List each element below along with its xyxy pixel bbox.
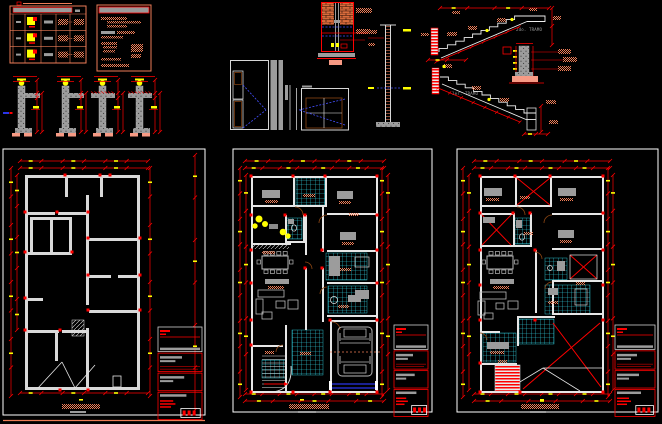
column-marker [59, 329, 62, 332]
tb-logo [188, 411, 191, 416]
rebar-tick [513, 56, 517, 58]
footing [59, 128, 76, 133]
yellow-dim-tick [244, 335, 248, 337]
stair-section-details[interactable]: 2do. TRAMO 1er. TRAMO [368, 6, 577, 136]
cad-drawing: 2do. TRAMO 1er. TRAMO [0, 0, 662, 424]
sofa [258, 290, 284, 297]
specifications-table[interactable] [10, 6, 86, 63]
wall [519, 316, 555, 318]
wall-section-detail-4 [128, 77, 162, 137]
wall [480, 205, 517, 207]
yellow-dim-tick [9, 181, 13, 183]
yellow-dim-tick [114, 160, 118, 162]
text-bar [265, 279, 289, 284]
column-marker [99, 174, 102, 177]
plan-title-hatch [62, 404, 100, 409]
floor-plan-sheet-structural[interactable] [3, 149, 205, 421]
label-hatch [117, 31, 135, 34]
section-bubble [61, 79, 70, 81]
label-hatch [268, 286, 284, 289]
hatched-column [432, 68, 439, 94]
yellow-dim-tick [148, 238, 152, 240]
wall [25, 212, 55, 215]
column-marker [292, 175, 295, 178]
yellow-dim-tick [606, 231, 610, 233]
label-hatch [493, 286, 509, 289]
yellow-dim-tick [606, 333, 610, 335]
yellow-dim-tick [347, 160, 351, 162]
wall [25, 175, 28, 390]
chair [482, 260, 486, 264]
yellow-dim-tick [467, 192, 471, 194]
level-marker [77, 106, 83, 109]
wall [327, 250, 378, 252]
text-bar [262, 190, 280, 198]
wall [552, 248, 602, 250]
chair [277, 270, 281, 274]
hatched-column [431, 28, 438, 55]
footing [515, 72, 533, 76]
title-block [158, 327, 202, 420]
column-marker [304, 267, 307, 270]
column-marker [479, 212, 482, 215]
wheel [369, 356, 372, 364]
tb-line [617, 404, 627, 406]
label-hatch [421, 33, 429, 36]
yellow-dim-tick [193, 175, 197, 177]
plant [256, 216, 263, 223]
text-bar [44, 10, 52, 13]
yellow-dim-tick [148, 181, 152, 183]
yellow-dim-tick [386, 264, 390, 266]
yellow-dim-tick [452, 7, 456, 9]
wall [552, 280, 554, 313]
column-marker [250, 319, 253, 322]
column-marker [376, 391, 379, 394]
yellow-dim-tick [193, 345, 197, 347]
label-hatch [101, 64, 129, 67]
yellow-dim-tick [29, 392, 33, 394]
concrete-column [62, 86, 69, 128]
wall [325, 176, 327, 207]
label-hatch [558, 49, 571, 54]
symbol-icon [33, 33, 37, 37]
label-hatch [329, 60, 342, 65]
yellow-dim-tick [356, 167, 360, 169]
chair [502, 252, 506, 256]
column-marker [139, 237, 142, 240]
column-marker [24, 211, 27, 214]
cad-drawing-canvas: 2do. TRAMO 1er. TRAMO [0, 0, 662, 424]
label-hatch [103, 50, 115, 53]
ramp-line [38, 362, 62, 388]
text-bar [530, 411, 546, 413]
general-notes-panel[interactable] [97, 5, 151, 71]
label-hatch [497, 18, 506, 22]
column-marker [529, 212, 532, 215]
slope-dim [438, 88, 520, 122]
text-bar [558, 188, 576, 196]
wall [285, 241, 305, 243]
wall [322, 268, 324, 322]
stair-flight-2-label: 2do. TRAMO [516, 27, 542, 32]
gate-post [329, 381, 332, 390]
yellow-dim-tick [238, 231, 242, 233]
symbol-icon [33, 50, 37, 54]
column-marker [87, 309, 90, 312]
car [330, 327, 380, 376]
wall [100, 175, 103, 197]
label-hatch [549, 120, 558, 124]
yellow-dim-tick [574, 160, 578, 162]
label-hatch [524, 232, 533, 235]
text-bar [490, 279, 514, 284]
section-bubble [19, 80, 25, 86]
text-bar [558, 230, 574, 238]
label-hatch [472, 86, 481, 90]
landing-beam [527, 108, 536, 130]
wood-panel [235, 73, 242, 85]
column-marker [139, 274, 142, 277]
label-hatch [107, 21, 141, 24]
yellow-dim-tick [238, 282, 242, 284]
car-body [338, 327, 372, 376]
text-bar [396, 392, 416, 395]
label-hatch [563, 57, 577, 62]
wall [535, 250, 537, 313]
wall [480, 213, 513, 215]
yellow-dim-tick [71, 167, 75, 169]
yellow-dim-tick [486, 400, 490, 402]
wall [69, 217, 72, 255]
column-marker [602, 212, 605, 215]
chair [508, 270, 512, 274]
column-marker [321, 267, 324, 270]
section-bubble [98, 79, 107, 81]
yellow-dim-tick [252, 167, 256, 169]
wall-section-detail-3 [91, 77, 125, 137]
plant [262, 221, 268, 227]
column-marker [64, 174, 67, 177]
label-hatch [74, 52, 84, 58]
label-hatch [262, 251, 275, 254]
floor-plan-sheet-second-floor[interactable] [457, 149, 658, 417]
column-marker [284, 214, 287, 217]
marker [487, 98, 490, 101]
sofa [496, 303, 504, 309]
swing-line [243, 85, 266, 110]
wall [530, 213, 532, 247]
column-marker [292, 391, 295, 394]
label-hatch [576, 282, 585, 285]
text-bar [483, 217, 495, 223]
column-marker [87, 389, 90, 392]
column-marker [479, 249, 482, 252]
counter [548, 288, 558, 295]
label-hatch [447, 32, 457, 36]
chair [515, 260, 519, 264]
text-bar [16, 54, 21, 56]
floor-plan-sheet-first-floor[interactable] [233, 149, 432, 417]
tb-title-text [396, 332, 402, 334]
wall [25, 298, 43, 301]
text-bar [70, 411, 86, 413]
ramp-line [62, 362, 75, 388]
level-marker [403, 87, 411, 90]
label-hatch [131, 44, 143, 52]
column-marker [479, 362, 482, 365]
text-bar [484, 188, 502, 196]
label-hatch [300, 352, 311, 355]
stirrup-box [503, 47, 511, 54]
text-bar [101, 31, 115, 34]
yellow-dim-tick [436, 59, 440, 61]
footing-pad [130, 133, 138, 137]
footing-pad [512, 76, 538, 82]
yellow-dim-tick [461, 383, 465, 385]
label-hatch [107, 25, 127, 28]
wall [55, 333, 58, 361]
wall [25, 175, 140, 178]
label-hatch [368, 30, 377, 34]
marker [442, 65, 445, 68]
chair [495, 270, 499, 274]
level-marker [403, 29, 411, 32]
yellow-dim-tick [79, 399, 83, 401]
yellow-dim-tick [461, 180, 465, 182]
symbol-icon [29, 42, 35, 44]
wheel [369, 333, 372, 341]
footing [15, 128, 32, 133]
column-marker [321, 249, 324, 252]
concrete-arm [91, 93, 115, 98]
yellow-dim-tick [380, 231, 384, 233]
yellow-dim-tick [15, 190, 19, 192]
label-hatch [560, 240, 572, 243]
column-marker [71, 251, 74, 254]
yellow-dim-tick [606, 383, 610, 385]
wall [25, 330, 59, 333]
text-bar [396, 374, 415, 377]
title-block [615, 325, 655, 417]
label-hatch [74, 19, 84, 25]
chair [270, 270, 274, 274]
column-marker [602, 391, 605, 394]
tb-logo [418, 408, 421, 413]
chair [489, 252, 493, 256]
column-marker [56, 211, 59, 214]
level-marker [33, 106, 39, 109]
text-bar [396, 345, 426, 348]
yellow-dim-tick [321, 167, 325, 169]
text-bar [617, 378, 629, 380]
text-bar [298, 411, 316, 413]
column-marker [479, 284, 482, 287]
yellow-dim-tick [257, 400, 261, 402]
column-marker [534, 249, 537, 252]
yellow-dim-tick [286, 393, 290, 395]
car-hood [344, 329, 366, 337]
ramp-line [75, 365, 95, 388]
concrete-column [519, 46, 529, 76]
column-marker [24, 329, 27, 332]
yellow-dim-tick [114, 392, 118, 394]
kitchen-counter [329, 256, 340, 276]
yellow-dim-tick [9, 352, 13, 354]
wall [251, 176, 378, 178]
dim-tick [460, 96, 463, 99]
wall [330, 320, 332, 391]
tb-title-text [617, 328, 627, 330]
duct [113, 376, 121, 387]
wall [86, 328, 89, 390]
yellow-dim-tick [29, 160, 33, 162]
column-marker [376, 249, 379, 252]
column-marker [376, 282, 379, 285]
flue-band [334, 20, 340, 23]
column-marker [376, 175, 379, 178]
tile-floor [296, 178, 325, 205]
label-hatch [74, 35, 84, 41]
label-hatch [265, 200, 278, 203]
wall [30, 217, 33, 255]
wood-panel [235, 102, 242, 127]
yellow-dim-tick [29, 167, 33, 169]
sink [516, 220, 522, 228]
symbol-icon [33, 17, 37, 21]
chair [290, 260, 294, 264]
tb-line [617, 398, 629, 400]
text-bar [160, 394, 186, 397]
label-hatch [356, 29, 370, 34]
tb-line [617, 401, 631, 403]
wall-section-detail-2 [56, 77, 88, 137]
wall [480, 331, 500, 333]
column-marker [329, 319, 332, 322]
yellow-dim-tick [549, 393, 553, 395]
roof-line [553, 323, 601, 387]
tb-line [396, 404, 405, 406]
tb-title-text [617, 332, 623, 334]
yellow-dim-tick [611, 192, 615, 194]
tb-line [160, 406, 171, 408]
label-hatch [486, 198, 499, 201]
label-hatch [339, 201, 351, 204]
label-hatch [265, 351, 274, 354]
label-hatch [498, 360, 507, 363]
chimney-brick-detail[interactable] [317, 3, 372, 66]
wall [513, 213, 515, 247]
text-bar [160, 348, 200, 351]
column-marker [109, 174, 112, 177]
title-block [394, 325, 428, 417]
text-bar [487, 342, 509, 349]
yellow-dim-tick [71, 160, 75, 162]
wall [513, 245, 532, 247]
label-hatch [101, 17, 127, 20]
dim-tick [494, 36, 497, 39]
text-bar [160, 360, 175, 362]
wall [552, 280, 602, 282]
sofa [480, 292, 506, 299]
yellow-dim-tick [594, 400, 598, 402]
plant [285, 233, 290, 238]
wall-section-details[interactable] [3, 77, 162, 137]
yellow-dim-tick [611, 335, 615, 337]
wall [480, 176, 604, 178]
label-hatch [546, 100, 556, 104]
yellow-dim-tick [9, 295, 13, 297]
yellow-dim-tick [368, 400, 372, 402]
dim-tick [472, 101, 475, 104]
dim-tick [435, 61, 438, 64]
chair [283, 270, 287, 274]
section-bubble [17, 79, 26, 81]
door-jamb [285, 85, 288, 100]
yellow-dim-tick [540, 399, 544, 401]
section-bubble [135, 79, 144, 81]
column-marker [87, 237, 90, 240]
column-marker [87, 274, 90, 277]
column-marker [479, 319, 482, 322]
text-bar [44, 37, 53, 40]
label-hatch [58, 35, 68, 41]
dim-tick [483, 106, 486, 109]
wall [50, 220, 53, 255]
yellow-dim-tick [583, 393, 587, 395]
tb-logo [183, 411, 186, 416]
yellow-dim-tick [386, 335, 390, 337]
tb-logo [413, 408, 416, 413]
column-marker [512, 212, 515, 215]
label-hatch [548, 301, 558, 304]
plan-title-hatch [521, 404, 559, 409]
column-marker [304, 214, 307, 217]
text-bar [44, 21, 53, 24]
stair-hatch [72, 320, 84, 336]
column-marker [87, 211, 90, 214]
wall [327, 315, 378, 317]
text-bar [16, 37, 21, 39]
tb-line [160, 400, 173, 402]
tb-logo [193, 411, 196, 416]
ref-mark [17, 2, 21, 5]
label-hatch [342, 242, 354, 245]
column-marker [250, 214, 253, 217]
tb-title-text [396, 328, 406, 330]
wall [517, 205, 552, 207]
concrete-column [18, 86, 25, 128]
column-marker [324, 175, 327, 178]
label-hatch [131, 54, 141, 58]
door-leaf [271, 60, 278, 130]
stair-hatch [495, 365, 520, 391]
car-trunk [344, 365, 366, 373]
label-hatch [553, 16, 561, 20]
yellow-dim-tick [15, 252, 19, 254]
text-bar [160, 380, 173, 382]
yellow-dim-tick [15, 314, 19, 316]
yellow-dim-tick [193, 260, 197, 262]
column-marker [602, 319, 605, 322]
npt-marker [3, 112, 9, 114]
tile-floor [519, 319, 554, 344]
elevation-details[interactable] [231, 60, 349, 130]
chair [508, 252, 512, 256]
concrete-arm [128, 93, 152, 98]
sofa [508, 301, 518, 309]
footing-pad [93, 133, 101, 137]
